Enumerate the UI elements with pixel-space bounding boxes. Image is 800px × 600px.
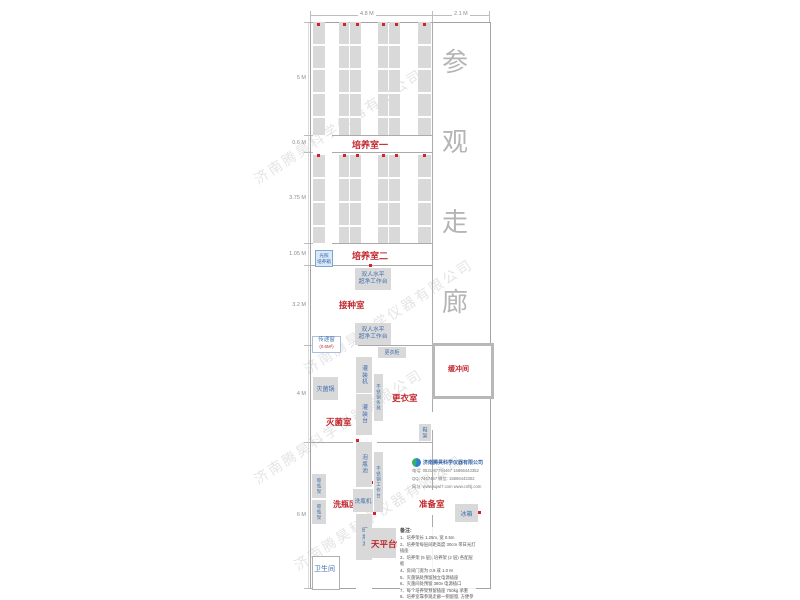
bottle-dry-rack-label: 晾瓶架: [316, 504, 322, 521]
company-qq: QQ: 7457467 微信: 15866443352: [412, 475, 492, 483]
company-block: 济南腾昊科学仪器有限公司 电话: 0531-87794467 158664433…: [412, 458, 492, 491]
bottle-washer-box: 洗瓶机: [353, 489, 373, 512]
culture-rack: [418, 22, 431, 135]
filling-table-label: 灌装台: [360, 404, 369, 424]
filling-table-box: 灌装台: [356, 394, 372, 435]
corridor-char: 观: [441, 122, 469, 202]
autoclave-label: 灭菌锅: [316, 384, 334, 393]
dimension-label-5m: 5 M: [288, 75, 306, 81]
company-web: 网址: www.sqwl7.com www.cnhlj.com: [412, 483, 492, 491]
shoe-rack-label: 鞋架: [422, 427, 429, 439]
filler-machine-label: 灌装机: [360, 365, 369, 385]
culture-rack: [339, 22, 349, 135]
note-line: 1、培养架长 1.25m, 宽 0.5m: [400, 535, 476, 542]
dimension-label-6m: 6 M: [288, 512, 306, 518]
door-opening: [356, 585, 372, 590]
clean-bench-label-line2: 超净工作台: [359, 279, 388, 286]
stainless-bench-box: 不锈钢条凳: [374, 374, 383, 421]
wall-changing-preparation: [377, 442, 432, 443]
dimension-label-4m: 4 M: [288, 391, 306, 397]
wall-culture1-band-top: [332, 135, 432, 136]
company-phone: 电话: 0531-87794467 15866443352: [412, 467, 492, 475]
door-marker-dot: [373, 512, 376, 515]
pass-window-size-label: (0.6M²): [313, 344, 340, 349]
dimension-label-105m: 1.05 M: [282, 251, 306, 257]
filler-machine-box: 灌装机: [356, 357, 372, 393]
rack-marker-dot: [356, 23, 359, 26]
room-label-culture2: 培养室二: [352, 249, 388, 262]
culture-rack: [350, 22, 361, 135]
wall-culture1-culture2: [332, 152, 432, 153]
stainless-worktable-box: 不锈钢工作台: [374, 452, 383, 512]
pass-window-label: 传递窗: [313, 337, 340, 344]
wardrobe-label: 更衣柜: [384, 349, 399, 356]
dimension-label-48m: 4.8 M: [358, 11, 376, 17]
pass-window-box: 传递窗 (0.6M²): [312, 336, 341, 353]
stainless-worktable-label: 不锈钢工作台: [376, 466, 382, 498]
wall-inoculation-sterilization: [358, 345, 432, 346]
room-label-inoculation: 接种室: [339, 299, 365, 311]
bottle-dry-rack-box: 晾瓶架: [312, 474, 326, 498]
soak-pool-label: 泡瓶池: [360, 454, 369, 474]
rack-marker-dot: [395, 154, 398, 157]
autoclave-box: 灭菌锅: [313, 377, 338, 400]
clean-bench-label-line1: 双人水平: [361, 272, 384, 279]
dimension-label-375m: 3.75 M: [282, 195, 306, 201]
fridge-label: 冰箱: [460, 509, 472, 518]
corridor-char: 走: [441, 202, 469, 282]
corridor-wall: [432, 22, 433, 343]
culture-rack: [350, 155, 361, 243]
dimension-label-21m: 2.1 M: [452, 11, 470, 17]
culture-rack: [418, 155, 431, 243]
note-line: 6、灭菌间处预留 380v 电源插口: [400, 581, 476, 588]
clean-bench-label-line2: 超净工作台: [359, 334, 388, 341]
room-label-toilet: 卫生间: [314, 564, 335, 574]
bottle-dry-rack-box: 晾瓶架: [312, 500, 326, 524]
dimension-tick: [432, 11, 433, 22]
dimension-label-32m: 3.2 M: [284, 302, 306, 308]
room-label-culture1: 培养室一: [352, 138, 388, 151]
rack-marker-dot: [382, 154, 385, 157]
culture-rack: [378, 22, 388, 135]
notes-header: 备注:: [400, 527, 476, 535]
soak-pool-box: 泡瓶池: [356, 442, 372, 487]
wardrobe-box: 更衣柜: [378, 347, 406, 358]
note-line: 3、培养架 (5 层), 培养架 (2 层) 各配层板: [400, 555, 476, 568]
clean-bench-box: 双人水平 超净工作台: [355, 268, 391, 290]
dimension-tick: [310, 11, 311, 22]
culture-rack: [313, 155, 325, 243]
note-line: 8、培养室靠参观走廊一侧留窗, 方便参观学习。: [400, 594, 476, 600]
company-name: 济南腾昊科学仪器有限公司: [423, 459, 483, 466]
company-logo-icon: [412, 458, 421, 467]
door-marker-dot: [369, 264, 372, 267]
wall-sterilization-washing: [310, 442, 353, 443]
lighted-incubator-box: 光照 培养箱: [315, 250, 333, 267]
wall-culture2-band-top: [332, 243, 432, 244]
bottle-dry-rack-label: 晾瓶架: [316, 478, 322, 495]
fridge-marker-dot: [478, 511, 481, 514]
stainless-bench-label: 不锈钢条凳: [376, 384, 382, 411]
corridor-title: 参 观 走 廊: [441, 42, 469, 362]
culture-rack: [313, 22, 325, 135]
shoe-rack-box: 鞋架: [419, 424, 431, 441]
rack-marker-dot: [356, 154, 359, 157]
room-label-buffer: 缓冲间: [448, 364, 469, 374]
clean-bench-label-line1: 双人水平: [361, 327, 384, 334]
corridor-char: 参: [441, 42, 469, 122]
rack-marker-dot: [317, 23, 320, 26]
left-dimension-line: [308, 22, 309, 588]
culture-rack: [339, 155, 349, 243]
room-label-changing: 更衣室: [392, 392, 418, 404]
dimension-label-06m: 0.6 M: [284, 140, 306, 146]
rack-marker-dot: [395, 23, 398, 26]
rack-marker-dot: [382, 23, 385, 26]
culture-rack: [378, 155, 388, 243]
rack-marker-dot: [343, 154, 346, 157]
incubator-label-line2: 培养箱: [316, 259, 332, 265]
room-label-preparation: 准备室: [419, 498, 445, 510]
rack-marker-dot: [423, 154, 426, 157]
room-label-sterilization: 灭菌室: [326, 416, 352, 428]
culture-rack: [389, 22, 400, 135]
rack-marker-dot: [317, 154, 320, 157]
dimension-tick: [489, 11, 490, 22]
clean-bench-box: 双人水平 超净工作台: [355, 323, 391, 345]
culture-rack: [389, 155, 400, 243]
floor-plan-canvas: 济南腾昊科学仪器有限公司 济南腾昊科学仪器有限公司 济南腾昊科学仪器有限公司 济…: [0, 0, 800, 600]
rack-marker-dot: [343, 23, 346, 26]
fridge-box: 冰箱: [455, 504, 478, 522]
notes-block: 备注: 1、培养架长 1.25m, 宽 0.5m 2、培养架每层间距高度 30c…: [400, 527, 476, 600]
bottle-washer-label: 洗瓶机: [355, 497, 372, 505]
note-line: 4、房间门宽为 0.9 或 1.0 M: [400, 568, 476, 575]
room-label-balance: 天平台: [371, 538, 397, 550]
note-line: 2、培养架每层间距高度 30cm 带日光灯插座: [400, 542, 476, 555]
rack-marker-dot: [423, 23, 426, 26]
